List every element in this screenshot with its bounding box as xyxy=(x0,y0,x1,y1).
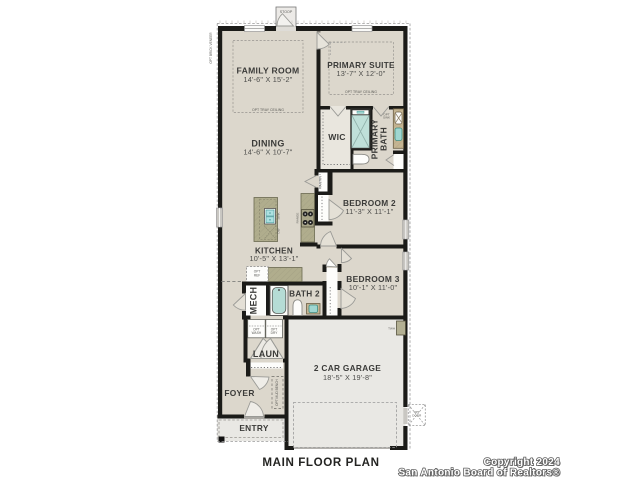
svg-text:14'-6" X 15'-2": 14'-6" X 15'-2" xyxy=(243,75,292,84)
svg-text:WIC: WIC xyxy=(328,132,346,142)
svg-text:PANTRY: PANTRY xyxy=(319,175,323,189)
svg-text:Copyright 2024: Copyright 2024 xyxy=(484,457,561,468)
svg-text:2 CAR GARAGE: 2 CAR GARAGE xyxy=(314,363,381,373)
svg-text:STOOP: STOOP xyxy=(280,10,293,14)
svg-text:10'-5" X 13'-1": 10'-5" X 13'-1" xyxy=(249,254,298,263)
svg-text:OPT BRICK VENEER: OPT BRICK VENEER xyxy=(209,32,213,64)
svg-text:13'-7" X 12'-0": 13'-7" X 12'-0" xyxy=(336,69,385,78)
svg-text:FAMILY ROOM: FAMILY ROOM xyxy=(237,66,300,76)
svg-text:ENTRY: ENTRY xyxy=(239,423,268,433)
svg-text:BATH 2: BATH 2 xyxy=(289,290,320,299)
svg-text:SINK: SINK xyxy=(277,212,281,219)
svg-text:11'-3" X 11'-1": 11'-3" X 11'-1" xyxy=(345,207,393,216)
svg-text:OPT TRAY CEILING: OPT TRAY CEILING xyxy=(252,108,284,112)
svg-text:LAUN: LAUN xyxy=(253,349,279,359)
svg-text:SINK: SINK xyxy=(383,116,390,120)
svg-text:MECH: MECH xyxy=(249,287,259,315)
svg-text:14'-6" X 10'-7": 14'-6" X 10'-7" xyxy=(243,148,292,157)
svg-text:REF: REF xyxy=(254,274,260,278)
svg-text:TWH: TWH xyxy=(388,327,395,331)
svg-text:DOOR: DOOR xyxy=(412,414,422,418)
svg-text:RANGE: RANGE xyxy=(296,213,300,224)
svg-text:WASH: WASH xyxy=(252,331,262,335)
svg-text:10'-1" X 11'-0": 10'-1" X 11'-0" xyxy=(349,283,398,292)
svg-text:MAIN FLOOR PLAN: MAIN FLOOR PLAN xyxy=(262,456,379,469)
svg-text:18'-5" X 19'-8": 18'-5" X 19'-8" xyxy=(323,373,372,382)
svg-text:DRY: DRY xyxy=(271,331,279,335)
svg-text:FOYER: FOYER xyxy=(224,388,254,398)
svg-text:OPT TRAY CEILING: OPT TRAY CEILING xyxy=(345,90,377,94)
svg-text:OPT MUD BENCH: OPT MUD BENCH xyxy=(275,378,279,405)
svg-text:San Antonio Board of Realtors®: San Antonio Board of Realtors® xyxy=(398,468,560,479)
svg-text:DW: DW xyxy=(277,228,281,233)
svg-text:BATH: BATH xyxy=(379,127,389,151)
